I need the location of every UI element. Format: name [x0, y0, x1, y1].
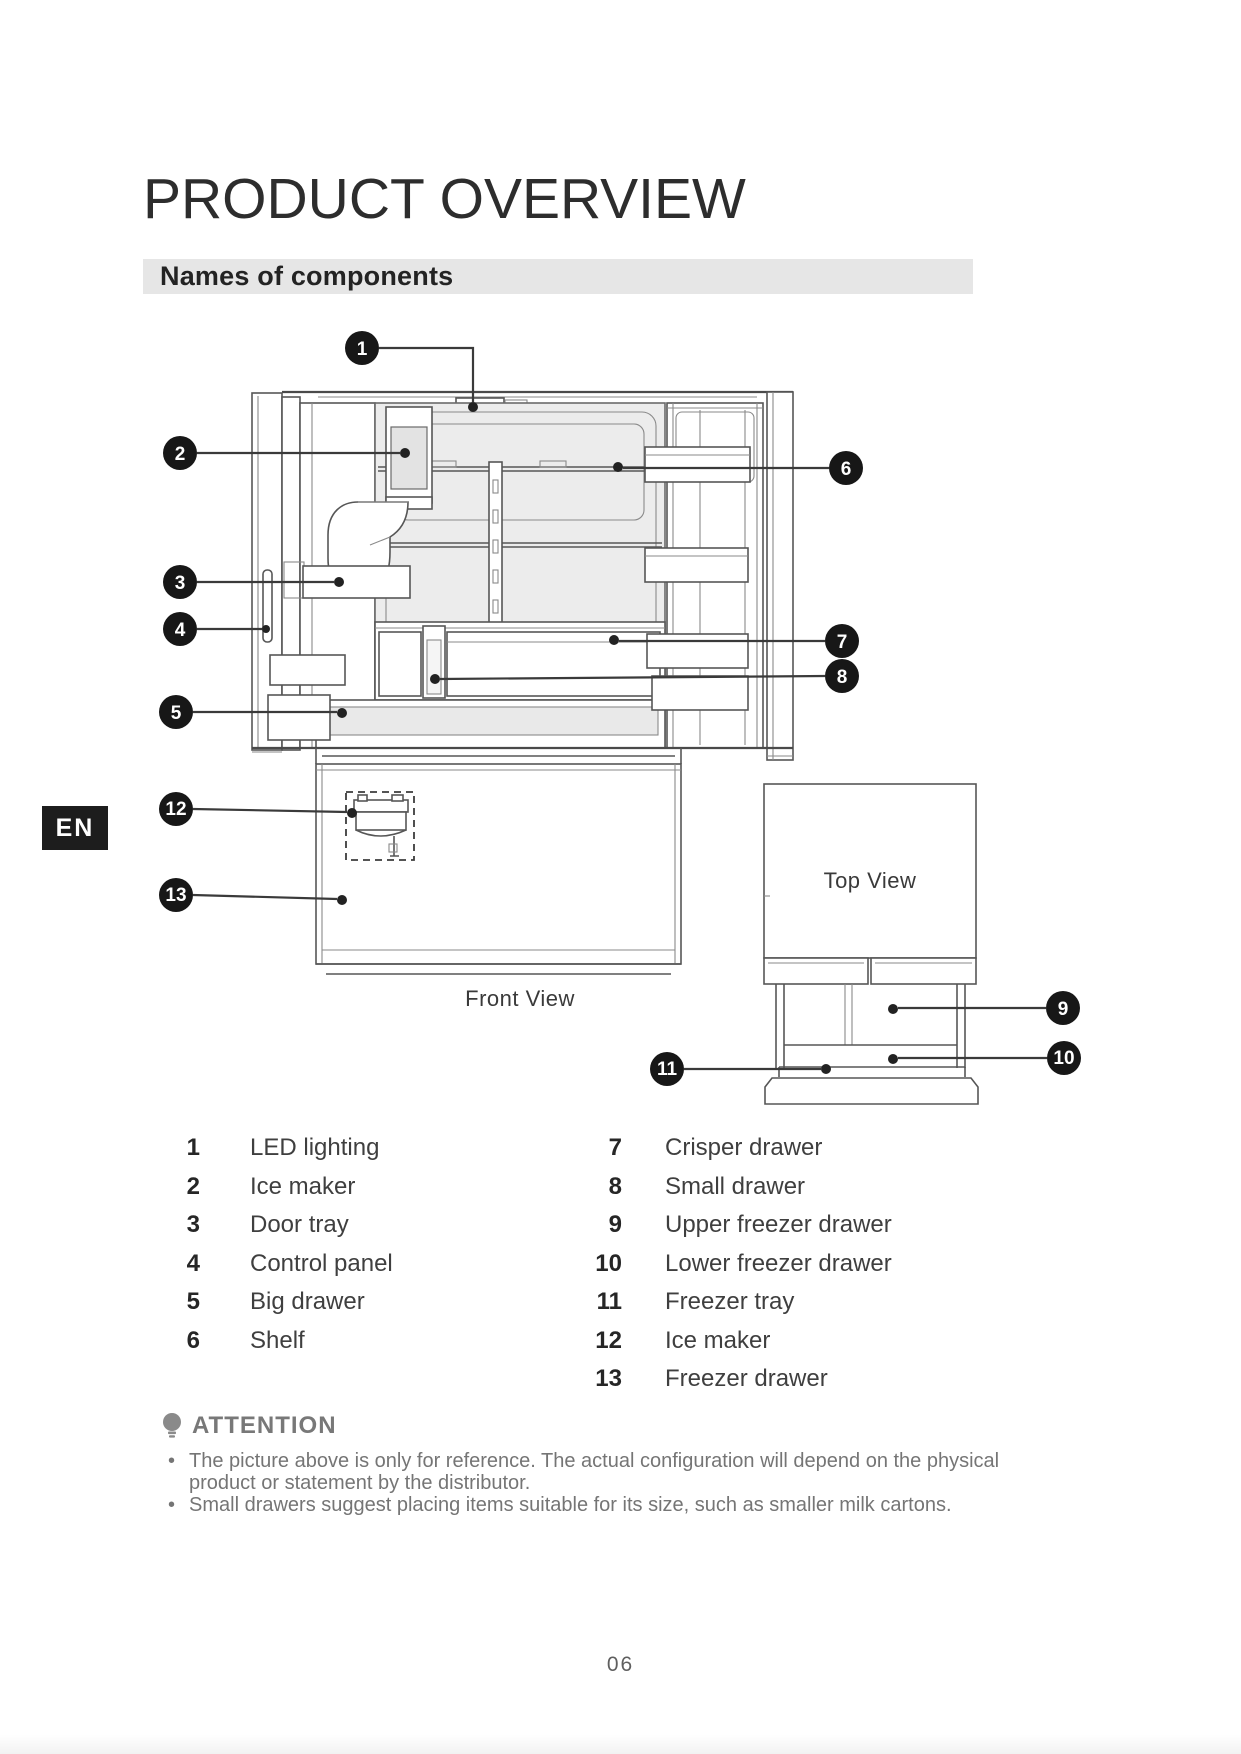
list-item: 6Shelf	[160, 1327, 393, 1366]
door-bin	[652, 676, 748, 710]
svg-text:1: 1	[357, 339, 368, 360]
callout-10: 10	[1047, 1041, 1081, 1075]
svg-text:6: 6	[841, 459, 852, 480]
right-door	[645, 392, 793, 760]
list-item: 12Ice maker	[560, 1327, 892, 1366]
bulb-icon	[160, 1412, 186, 1440]
crisper-drawers	[375, 622, 665, 700]
list-item: 10Lower freezer drawer	[560, 1250, 892, 1289]
svg-text:3: 3	[175, 573, 186, 594]
svg-text:4: 4	[175, 620, 186, 641]
svg-text:5: 5	[171, 703, 182, 724]
item-number: 4	[160, 1250, 200, 1278]
svg-text:13: 13	[165, 885, 186, 906]
item-label: Control panel	[250, 1250, 393, 1278]
top-view-right-door	[871, 958, 976, 984]
component-list-left: 1LED lighting 2Ice maker 3Door tray 4Con…	[160, 1134, 393, 1365]
big-drawer	[316, 700, 665, 748]
freezer-drawer-front	[316, 748, 681, 974]
item-number: 7	[560, 1134, 622, 1162]
list-item: 13Freezer drawer	[560, 1365, 892, 1404]
item-number: 5	[160, 1288, 200, 1316]
item-number: 3	[160, 1211, 200, 1239]
list-item: 11Freezer tray	[560, 1288, 892, 1327]
svg-text:12: 12	[165, 799, 186, 820]
door-tray	[268, 695, 330, 740]
door-bin	[647, 634, 748, 668]
item-label: Upper freezer drawer	[665, 1211, 892, 1239]
front-view-label: Front View	[465, 986, 575, 1011]
top-view-diagram: Top View	[764, 784, 978, 1104]
list-item: 4Control panel	[160, 1250, 393, 1289]
list-item: 7Crisper drawer	[560, 1134, 892, 1173]
callout-11: 11	[650, 1052, 684, 1086]
top-view-label: Top View	[824, 868, 917, 893]
attention-note: The picture above is only for reference.…	[168, 1450, 1016, 1494]
freezer-base	[765, 1078, 978, 1104]
svg-text:11: 11	[657, 1059, 678, 1080]
callout-2: 2	[163, 436, 197, 470]
attention-title: ATTENTION	[192, 1412, 337, 1440]
callout-6: 6	[829, 451, 863, 485]
door-bin	[645, 548, 748, 582]
item-label: Door tray	[250, 1211, 349, 1239]
svg-text:2: 2	[175, 444, 186, 465]
attention-note: Small drawers suggest placing items suit…	[168, 1494, 1016, 1516]
list-item: 8Small drawer	[560, 1173, 892, 1212]
callout-4: 4	[163, 612, 197, 646]
attention-header: ATTENTION	[160, 1412, 1040, 1440]
svg-text:9: 9	[1058, 999, 1069, 1020]
list-item: 1LED lighting	[160, 1134, 393, 1173]
manual-page: PRODUCT OVERVIEW Names of components	[0, 0, 1241, 1754]
front-view-diagram	[252, 392, 793, 974]
callout-9: 9	[1046, 991, 1080, 1025]
attention-section: ATTENTION The picture above is only for …	[160, 1412, 1040, 1516]
section-header-label: Names of components	[160, 261, 453, 292]
item-number: 10	[560, 1250, 622, 1278]
freezer-drawers-side	[776, 984, 965, 1077]
svg-text:7: 7	[837, 632, 848, 653]
item-label: Big drawer	[250, 1288, 365, 1316]
item-label: Lower freezer drawer	[665, 1250, 892, 1278]
door-bin	[645, 447, 750, 482]
item-label: Shelf	[250, 1327, 305, 1355]
item-label: Freezer tray	[665, 1288, 794, 1316]
page-edge-shadow	[0, 1734, 1241, 1754]
item-number: 6	[160, 1327, 200, 1355]
item-label: Ice maker	[665, 1327, 770, 1355]
list-item: 2Ice maker	[160, 1173, 393, 1212]
component-list-right: 7Crisper drawer 8Small drawer 9Upper fre…	[560, 1134, 892, 1404]
page-number: 06	[0, 1653, 1241, 1677]
item-number: 8	[560, 1173, 622, 1201]
list-item: 3Door tray	[160, 1211, 393, 1250]
callout-13: 13	[159, 878, 193, 912]
item-label: Freezer drawer	[665, 1365, 828, 1393]
item-label: Crisper drawer	[665, 1134, 822, 1162]
item-number: 12	[560, 1327, 622, 1355]
callout-7: 7	[825, 624, 859, 658]
callout-1: 1	[345, 331, 379, 365]
language-tab: EN	[42, 806, 108, 850]
section-header: Names of components	[143, 259, 973, 294]
item-number: 13	[560, 1365, 622, 1393]
door-tray	[270, 655, 345, 685]
top-view-left-door	[764, 958, 868, 984]
callout-5: 5	[159, 695, 193, 729]
svg-text:8: 8	[837, 667, 848, 688]
list-item: 9Upper freezer drawer	[560, 1211, 892, 1250]
product-diagram: Top View Front View	[0, 300, 1241, 1115]
item-label: Small drawer	[665, 1173, 805, 1201]
item-number: 11	[560, 1288, 622, 1316]
item-number: 2	[160, 1173, 200, 1201]
callout-3: 3	[163, 565, 197, 599]
item-label: Ice maker	[250, 1173, 355, 1201]
svg-text:10: 10	[1053, 1048, 1074, 1069]
item-number: 1	[160, 1134, 200, 1162]
page-title: PRODUCT OVERVIEW	[143, 166, 746, 232]
language-tab-label: EN	[56, 814, 95, 843]
item-label: LED lighting	[250, 1134, 379, 1162]
list-item: 5Big drawer	[160, 1288, 393, 1327]
ice-maker-compartment	[386, 407, 432, 509]
attention-notes: The picture above is only for reference.…	[160, 1450, 1016, 1516]
callout-8: 8	[825, 659, 859, 693]
item-number: 9	[560, 1211, 622, 1239]
callout-12: 12	[159, 792, 193, 826]
